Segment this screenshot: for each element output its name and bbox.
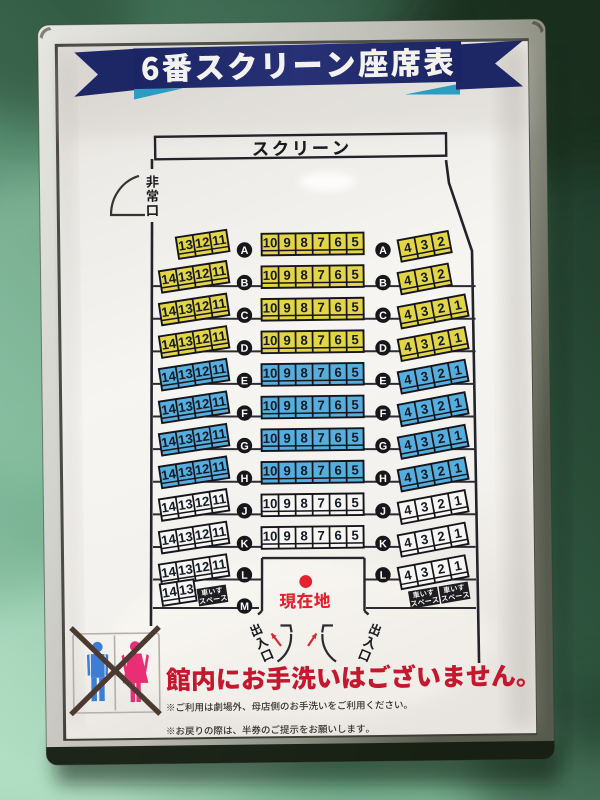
svg-text:M: M bbox=[240, 601, 249, 613]
svg-text:7: 7 bbox=[317, 332, 325, 347]
svg-text:A: A bbox=[241, 245, 249, 257]
svg-text:J: J bbox=[380, 506, 386, 518]
svg-text:13: 13 bbox=[178, 581, 195, 598]
svg-text:K: K bbox=[241, 538, 249, 550]
svg-text:12: 12 bbox=[194, 396, 211, 413]
svg-text:12: 12 bbox=[194, 493, 211, 510]
svg-text:7: 7 bbox=[317, 463, 325, 478]
svg-text:12: 12 bbox=[194, 234, 211, 251]
svg-text:13: 13 bbox=[177, 463, 194, 480]
svg-text:13: 13 bbox=[177, 366, 194, 383]
svg-text:14: 14 bbox=[160, 336, 177, 353]
svg-text:8: 8 bbox=[300, 300, 308, 315]
svg-text:10: 10 bbox=[263, 268, 278, 283]
svg-text:9: 9 bbox=[283, 463, 291, 478]
svg-text:10: 10 bbox=[263, 235, 278, 250]
svg-text:8: 8 bbox=[300, 267, 308, 282]
svg-text:6: 6 bbox=[334, 300, 342, 315]
svg-text:12: 12 bbox=[194, 526, 211, 543]
svg-text:14: 14 bbox=[160, 531, 177, 548]
svg-text:10: 10 bbox=[263, 398, 278, 413]
svg-text:14: 14 bbox=[160, 401, 177, 418]
svg-text:9: 9 bbox=[283, 333, 291, 348]
svg-text:L: L bbox=[241, 570, 248, 582]
svg-text:9: 9 bbox=[283, 496, 291, 511]
svg-text:A: A bbox=[379, 245, 387, 257]
svg-text:12: 12 bbox=[194, 461, 211, 478]
svg-text:11: 11 bbox=[211, 361, 227, 378]
svg-text:8: 8 bbox=[300, 463, 308, 478]
svg-text:9: 9 bbox=[283, 528, 291, 543]
svg-text:11: 11 bbox=[211, 328, 227, 345]
svg-text:B: B bbox=[241, 277, 249, 289]
svg-text:8: 8 bbox=[300, 235, 308, 250]
svg-text:7: 7 bbox=[317, 528, 325, 543]
svg-text:10: 10 bbox=[263, 529, 278, 544]
svg-text:13: 13 bbox=[177, 237, 194, 254]
svg-text:8: 8 bbox=[300, 398, 308, 413]
svg-text:6: 6 bbox=[334, 528, 342, 543]
svg-text:5: 5 bbox=[351, 528, 359, 543]
svg-text:8: 8 bbox=[300, 365, 308, 380]
svg-text:12: 12 bbox=[194, 363, 211, 380]
svg-text:10: 10 bbox=[263, 333, 278, 348]
svg-text:11: 11 bbox=[211, 556, 227, 573]
svg-text:14: 14 bbox=[160, 466, 177, 483]
svg-text:7: 7 bbox=[317, 235, 325, 250]
svg-text:13: 13 bbox=[177, 431, 194, 448]
svg-text:C: C bbox=[379, 310, 387, 322]
svg-text:13: 13 bbox=[177, 529, 194, 546]
svg-text:F: F bbox=[241, 408, 248, 420]
svg-text:6: 6 bbox=[334, 430, 342, 445]
svg-text:7: 7 bbox=[317, 300, 325, 315]
svg-text:5: 5 bbox=[351, 332, 359, 347]
svg-text:7: 7 bbox=[317, 495, 325, 510]
svg-text:H: H bbox=[379, 473, 387, 485]
svg-text:14: 14 bbox=[160, 270, 177, 287]
svg-text:G: G bbox=[240, 440, 249, 452]
svg-text:14: 14 bbox=[160, 433, 177, 450]
svg-text:5: 5 bbox=[351, 299, 359, 314]
svg-text:13: 13 bbox=[177, 301, 194, 318]
svg-text:9: 9 bbox=[283, 268, 291, 283]
svg-text:6: 6 bbox=[334, 267, 342, 282]
svg-text:11: 11 bbox=[211, 263, 227, 280]
svg-text:13: 13 bbox=[177, 398, 194, 415]
svg-text:11: 11 bbox=[211, 491, 227, 508]
svg-text:9: 9 bbox=[283, 300, 291, 315]
svg-text:8: 8 bbox=[300, 496, 308, 511]
svg-text:12: 12 bbox=[194, 331, 211, 348]
svg-text:9: 9 bbox=[283, 365, 291, 380]
svg-text:8: 8 bbox=[300, 528, 308, 543]
svg-text:E: E bbox=[379, 375, 386, 387]
svg-text:10: 10 bbox=[263, 431, 278, 446]
svg-text:6: 6 bbox=[334, 495, 342, 510]
svg-text:D: D bbox=[241, 343, 249, 355]
svg-text:12: 12 bbox=[194, 428, 211, 445]
svg-text:10: 10 bbox=[263, 366, 278, 381]
svg-text:13: 13 bbox=[177, 268, 194, 285]
svg-text:K: K bbox=[379, 538, 387, 550]
svg-text:6: 6 bbox=[334, 397, 342, 412]
svg-text:7: 7 bbox=[317, 365, 325, 380]
svg-text:6: 6 bbox=[334, 365, 342, 380]
svg-text:14: 14 bbox=[160, 368, 177, 385]
svg-text:11: 11 bbox=[211, 426, 227, 443]
svg-text:F: F bbox=[380, 408, 387, 420]
svg-text:J: J bbox=[241, 506, 247, 518]
svg-text:B: B bbox=[379, 277, 387, 289]
svg-text:13: 13 bbox=[177, 496, 194, 513]
svg-text:5: 5 bbox=[351, 234, 359, 249]
svg-text:8: 8 bbox=[300, 430, 308, 445]
svg-text:7: 7 bbox=[317, 398, 325, 413]
svg-text:14: 14 bbox=[160, 303, 177, 320]
svg-text:6: 6 bbox=[334, 234, 342, 249]
svg-text:5: 5 bbox=[351, 267, 359, 282]
svg-text:5: 5 bbox=[351, 462, 359, 477]
svg-text:L: L bbox=[380, 570, 387, 582]
svg-text:11: 11 bbox=[211, 393, 227, 410]
svg-text:11: 11 bbox=[211, 524, 227, 541]
svg-text:13: 13 bbox=[177, 333, 194, 350]
svg-text:11: 11 bbox=[211, 232, 227, 249]
svg-text:11: 11 bbox=[211, 458, 227, 475]
svg-text:E: E bbox=[241, 375, 248, 387]
svg-text:11: 11 bbox=[211, 295, 227, 312]
svg-text:12: 12 bbox=[194, 265, 211, 282]
svg-text:5: 5 bbox=[351, 397, 359, 412]
svg-text:6: 6 bbox=[334, 463, 342, 478]
svg-text:5: 5 bbox=[351, 365, 359, 380]
svg-text:7: 7 bbox=[317, 267, 325, 282]
svg-text:14: 14 bbox=[160, 564, 177, 581]
svg-text:10: 10 bbox=[263, 463, 278, 478]
svg-text:7: 7 bbox=[317, 430, 325, 445]
svg-text:C: C bbox=[241, 310, 249, 322]
svg-text:10: 10 bbox=[263, 496, 278, 511]
svg-text:5: 5 bbox=[351, 430, 359, 445]
svg-text:G: G bbox=[379, 440, 388, 452]
svg-text:12: 12 bbox=[194, 298, 211, 315]
svg-text:6: 6 bbox=[334, 332, 342, 347]
svg-text:14: 14 bbox=[161, 584, 178, 601]
svg-text:9: 9 bbox=[283, 398, 291, 413]
svg-text:8: 8 bbox=[300, 333, 308, 348]
svg-text:10: 10 bbox=[263, 300, 278, 315]
svg-text:5: 5 bbox=[351, 495, 359, 510]
svg-text:12: 12 bbox=[194, 559, 211, 576]
svg-text:14: 14 bbox=[160, 498, 177, 515]
svg-text:9: 9 bbox=[283, 235, 291, 250]
svg-text:D: D bbox=[379, 343, 387, 355]
svg-text:9: 9 bbox=[283, 431, 291, 446]
svg-text:13: 13 bbox=[177, 561, 194, 578]
svg-text:H: H bbox=[241, 473, 249, 485]
